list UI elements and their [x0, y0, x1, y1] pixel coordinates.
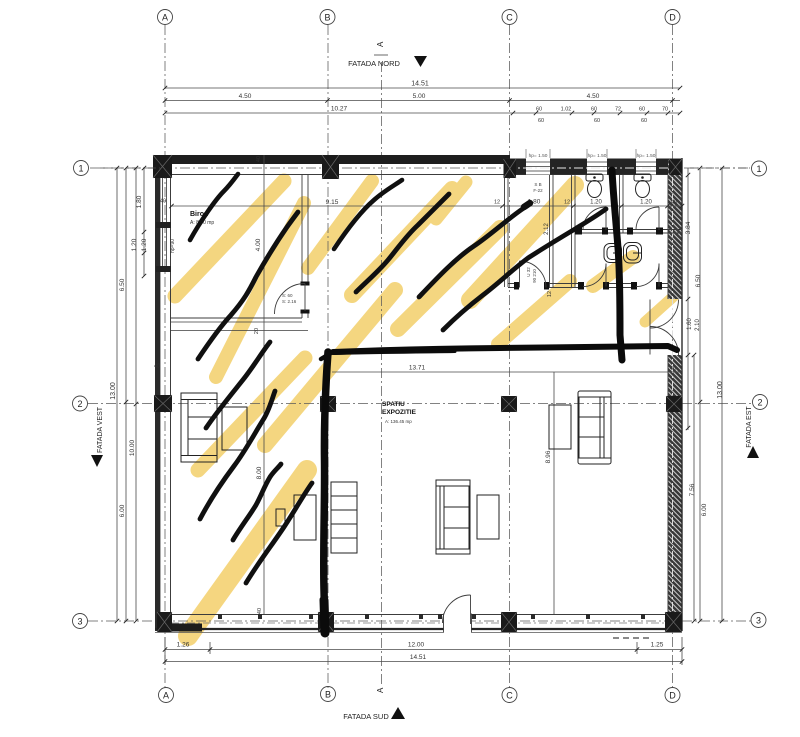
svg-text:40: 40 — [256, 156, 262, 162]
svg-text:1.60: 1.60 — [687, 318, 693, 330]
svg-text:1.25: 1.25 — [651, 642, 664, 649]
svg-text:U 32: U 32 — [526, 267, 531, 277]
svg-text:1.26: 1.26 — [177, 642, 190, 649]
svg-text:6.50: 6.50 — [119, 278, 126, 291]
svg-text:A: A — [376, 687, 385, 693]
svg-text:hp= 1.50: hp= 1.50 — [637, 153, 656, 159]
svg-text:60: 60 — [538, 118, 544, 124]
svg-text:13.00: 13.00 — [717, 381, 724, 399]
svg-text:8.00: 8.00 — [256, 466, 263, 479]
svg-text:hp= 1.50: hp= 1.50 — [588, 153, 607, 159]
svg-text:1.20: 1.20 — [640, 200, 652, 206]
svg-text:S: 60: S: 60 — [282, 293, 293, 298]
svg-text:C: C — [506, 691, 513, 701]
svg-text:10.00: 10.00 — [129, 439, 136, 456]
svg-text:A: A — [162, 13, 168, 23]
svg-text:D: D — [669, 13, 676, 23]
svg-text:A: A — [376, 41, 385, 47]
svg-text:C: C — [506, 13, 513, 23]
svg-text:FATADA NORD: FATADA NORD — [348, 59, 400, 68]
svg-text:1.20: 1.20 — [590, 200, 602, 206]
svg-text:14.51: 14.51 — [410, 654, 427, 661]
svg-text:A: A — [163, 691, 169, 701]
svg-text:70: 70 — [662, 107, 668, 113]
svg-text:D: D — [669, 691, 676, 701]
svg-text:1.20: 1.20 — [141, 238, 148, 251]
svg-text:2.10: 2.10 — [695, 319, 701, 331]
svg-text:6.00: 6.00 — [119, 504, 126, 517]
svg-text:6.50: 6.50 — [695, 274, 702, 287]
svg-text:90 210: 90 210 — [532, 269, 537, 283]
svg-text:40: 40 — [160, 199, 166, 205]
svg-text:hp= 1.50: hp= 1.50 — [529, 153, 548, 159]
svg-text:40: 40 — [670, 366, 676, 372]
svg-text:1: 1 — [78, 164, 83, 174]
svg-text:4.50: 4.50 — [587, 93, 600, 100]
svg-text:2.12: 2.12 — [544, 223, 550, 235]
svg-text:3: 3 — [756, 616, 761, 626]
svg-text:S B: S B — [534, 182, 541, 187]
svg-text:12: 12 — [564, 200, 570, 206]
svg-text:40: 40 — [671, 200, 677, 206]
svg-text:FATADA EST: FATADA EST — [746, 406, 753, 448]
svg-text:6.00: 6.00 — [701, 503, 708, 516]
svg-text:1.20: 1.20 — [131, 238, 138, 251]
svg-text:1.02: 1.02 — [561, 107, 572, 113]
svg-text:20: 20 — [254, 328, 260, 334]
svg-text:60: 60 — [641, 118, 647, 124]
svg-text:2: 2 — [757, 398, 762, 408]
svg-text:hp=90: hp=90 — [170, 239, 176, 253]
svg-text:10.27: 10.27 — [331, 106, 348, 113]
svg-text:FATADA VEST: FATADA VEST — [97, 406, 104, 453]
svg-text:1.80: 1.80 — [136, 195, 143, 208]
svg-text:13.00: 13.00 — [110, 382, 117, 400]
svg-text:60: 60 — [639, 107, 645, 113]
svg-text:B: B — [325, 690, 331, 700]
svg-text:SPATIU: SPATIU — [382, 401, 405, 408]
svg-text:40: 40 — [257, 608, 263, 614]
svg-text:3: 3 — [77, 617, 82, 627]
svg-text:72: 72 — [615, 107, 621, 113]
svg-text:12.00: 12.00 — [408, 642, 425, 649]
svg-text:A: 136.45 mp: A: 136.45 mp — [385, 419, 412, 424]
svg-text:7.56: 7.56 — [689, 483, 696, 496]
svg-text:EXPOZITIE: EXPOZITIE — [382, 409, 417, 416]
svg-text:1: 1 — [756, 164, 761, 174]
svg-text:12: 12 — [494, 200, 500, 206]
svg-text:13.71: 13.71 — [409, 365, 426, 372]
svg-text:4.50: 4.50 — [239, 93, 252, 100]
svg-text:40: 40 — [154, 364, 160, 370]
svg-text:8.96: 8.96 — [545, 450, 552, 463]
svg-text:14.51: 14.51 — [411, 81, 429, 88]
svg-text:FATADA SUD: FATADA SUD — [343, 712, 389, 721]
svg-text:12: 12 — [547, 291, 553, 297]
svg-text:B: B — [324, 13, 330, 23]
svg-text:5.00: 5.00 — [413, 93, 426, 100]
svg-text:60: 60 — [536, 107, 542, 113]
svg-text:F-22: F-22 — [533, 188, 543, 193]
svg-text:4.00: 4.00 — [255, 238, 262, 251]
svg-text:9.15: 9.15 — [326, 199, 339, 206]
svg-text:60: 60 — [594, 118, 600, 124]
svg-text:3.84: 3.84 — [685, 221, 692, 234]
svg-text:60: 60 — [591, 107, 597, 113]
svg-text:S: 2.16: S: 2.16 — [282, 299, 297, 304]
svg-text:2: 2 — [77, 399, 82, 409]
